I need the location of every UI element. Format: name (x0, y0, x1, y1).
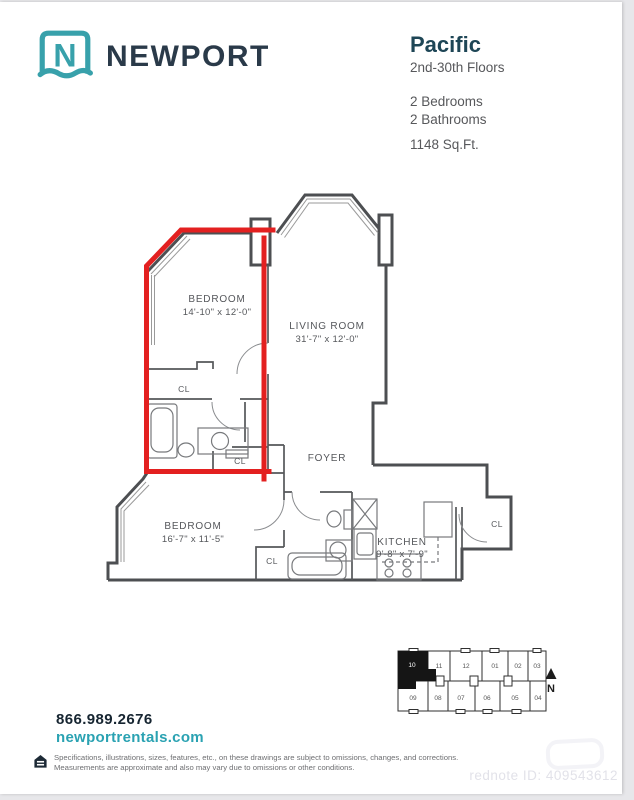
room-label: FOYER (308, 453, 346, 464)
disclaimer-line2: Measurements are approximate and also ma… (54, 763, 458, 773)
unit-number: 06 (483, 695, 491, 702)
key-plan: 10 11 12 01 02 03 09 08 07 06 05 04 N (398, 649, 557, 714)
room-label: BEDROOM (164, 521, 221, 532)
disclaimer-line1: Specifications, illustrations, sizes, fe… (54, 753, 458, 763)
closet-label: CL (178, 384, 190, 394)
equal-housing-icon (33, 754, 48, 769)
watermark-text: rednote ID: 409543612 (469, 768, 618, 783)
faded-sticker (545, 738, 604, 771)
unit-number: 09 (409, 695, 417, 702)
door-swings (212, 343, 487, 542)
unit-number: 10 (408, 662, 416, 669)
room-dims: 9'-8" x 7'-9" (376, 549, 428, 560)
unit-number: 01 (491, 663, 499, 670)
closet-label: CL (234, 456, 246, 466)
unit-number: 02 (514, 663, 522, 670)
room-dims: 16'-7" x 11'-5" (162, 534, 224, 545)
room-dims: 31'-7" x 12'-0" (296, 334, 359, 345)
unit-number: 11 (436, 663, 443, 670)
floorplan-sheet: N NEWPORT Pacific 2nd-30th Floors 2 Bedr… (0, 2, 622, 794)
room-label: BEDROOM (188, 294, 245, 305)
closet-label: CL (491, 519, 503, 529)
unit-number: 08 (434, 695, 442, 702)
unit-number: 12 (462, 663, 470, 670)
room-dims: 14'-10" x 12'-0" (183, 307, 252, 318)
website-link[interactable]: newportrentals.com (56, 729, 204, 746)
unit-number: 03 (533, 663, 541, 670)
unit-number: 04 (534, 695, 542, 702)
room-label: KITCHEN (377, 537, 427, 548)
highlight-outline (147, 230, 274, 479)
north-arrow-icon: N (546, 668, 557, 695)
closet-label: CL (266, 556, 278, 566)
room-label: LIVING ROOM (289, 321, 364, 332)
unit-number: 05 (511, 695, 519, 702)
north-label: N (547, 683, 555, 695)
floor-plan-drawing: BEDROOM 14'-10" x 12'-0" LIVING ROOM 31'… (0, 2, 622, 794)
unit-number: 07 (457, 695, 465, 702)
phone-number[interactable]: 866.989.2676 (56, 711, 153, 728)
